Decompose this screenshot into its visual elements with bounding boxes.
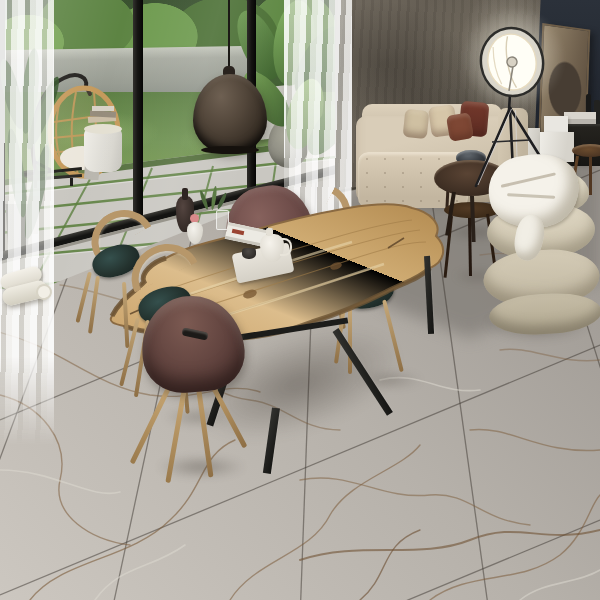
interior-photo: Photorealistic interior render: a live-e… [0, 0, 600, 600]
pendant-cord [228, 0, 230, 70]
sheer-curtain-left [0, 0, 54, 445]
rolled-textiles [0, 258, 52, 310]
tabletop-objects [168, 186, 308, 286]
pendant-lamp [193, 66, 267, 154]
beanbag-lounger [477, 159, 600, 341]
tea-cup [242, 248, 256, 259]
bud-vase [187, 222, 203, 244]
window-mullion [133, 0, 143, 226]
sofa-cushion-beige [403, 109, 430, 139]
